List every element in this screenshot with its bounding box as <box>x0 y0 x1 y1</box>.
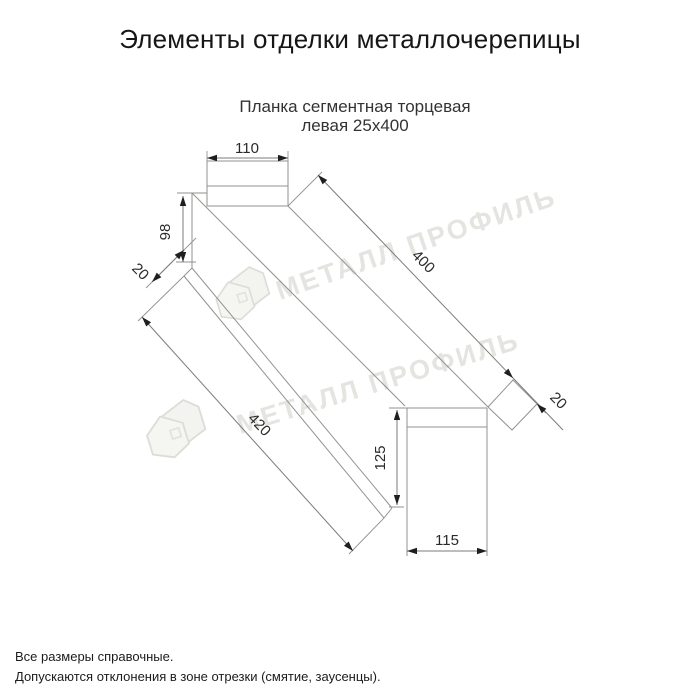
watermark-text-upper: МЕТАЛЛ ПРОФИЛЬ <box>272 181 560 305</box>
dim-end-height-label: 125 <box>372 445 389 470</box>
dim-left-height-label: 98 <box>157 224 174 241</box>
strip-bottom-hem-connector <box>384 508 392 518</box>
dim-left-fold-label: 20 <box>128 260 152 284</box>
dim-end-width-label: 115 <box>435 532 459 549</box>
dimension-end-height: 125 <box>372 408 407 507</box>
footer-note-2: Допускаются отклонения в зоне отрезки (с… <box>15 667 685 687</box>
footer-note-1: Все размеры справочные. <box>15 647 685 667</box>
strip-left-hem-connector <box>184 268 192 276</box>
dim-right-fold-label: 20 <box>546 389 570 413</box>
watermark-layer: МЕТАЛЛ ПРОФИЛЬ МЕТАЛЛ ПРОФИЛЬ <box>140 181 560 463</box>
metall-profil-logo-icon <box>210 264 274 325</box>
footer-notes: Все размеры справочные. Допускаются откл… <box>15 647 685 687</box>
dimension-top-width: 110 <box>207 140 288 163</box>
technical-drawing-canvas: МЕТАЛЛ ПРОФИЛЬ МЕТАЛЛ ПРОФИЛЬ 110 <box>0 0 700 700</box>
metall-profil-logo-icon <box>140 396 210 463</box>
top-end-tab <box>207 161 288 206</box>
dim-top-width-label: 110 <box>235 140 259 157</box>
dimension-right-fold: 20 <box>513 378 570 430</box>
dimension-left-height: 98 <box>157 193 206 262</box>
dimension-end-width: 115 <box>407 532 487 551</box>
right-end-fold <box>488 380 537 430</box>
page: { "page": { "background": "#ffffff" }, "… <box>0 0 700 700</box>
watermark-text-lower: МЕТАЛЛ ПРОФИЛЬ <box>233 325 523 440</box>
dimension-left-fold: 20 <box>128 238 196 288</box>
